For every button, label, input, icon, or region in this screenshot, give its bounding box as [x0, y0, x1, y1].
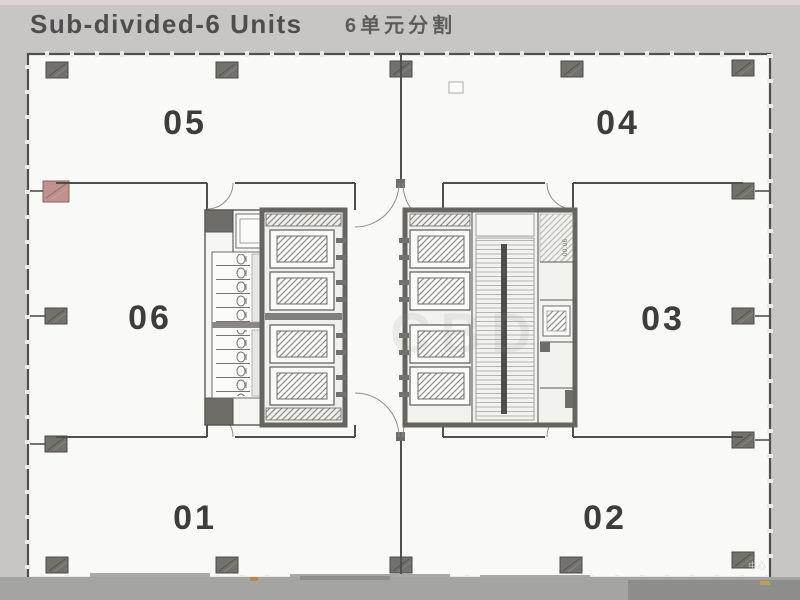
- center-watermark: CBD: [390, 301, 541, 364]
- elevator-bank-west: [262, 210, 346, 425]
- unit-label-02: 02: [583, 499, 627, 537]
- annotation-box: [449, 82, 463, 93]
- stair-level-label: 00.06: [563, 238, 569, 256]
- page-title: Sub-divided-6 Units: [30, 9, 303, 39]
- corridor-door-post-bottom: [396, 432, 405, 441]
- accent-column: [43, 181, 69, 202]
- corridor-door-post-top: [396, 179, 405, 188]
- top-edge-strip: [0, 0, 800, 5]
- restrooms: [212, 252, 262, 398]
- unit-label-06: 06: [128, 299, 172, 337]
- unit-label-04: 04: [596, 104, 640, 142]
- band-speck: [760, 581, 770, 585]
- unit-label-03: 03: [641, 300, 685, 338]
- floor-plan: Sub-divided-6 Units 6单元分割: [0, 0, 800, 600]
- floor-plan-page: Sub-divided-6 Units 6单元分割: [0, 0, 800, 600]
- bottom-band: [0, 573, 800, 600]
- unit-label-05: 05: [163, 104, 207, 142]
- shaft-block-top: [205, 210, 233, 232]
- page-title-chinese: 6单元分割: [345, 13, 456, 37]
- corner-watermark: 中心: [748, 560, 766, 571]
- unit-label-01: 01: [173, 499, 217, 537]
- shaft-block-bottom: [205, 398, 233, 425]
- band-speck: [250, 577, 258, 581]
- left-core: [205, 210, 346, 425]
